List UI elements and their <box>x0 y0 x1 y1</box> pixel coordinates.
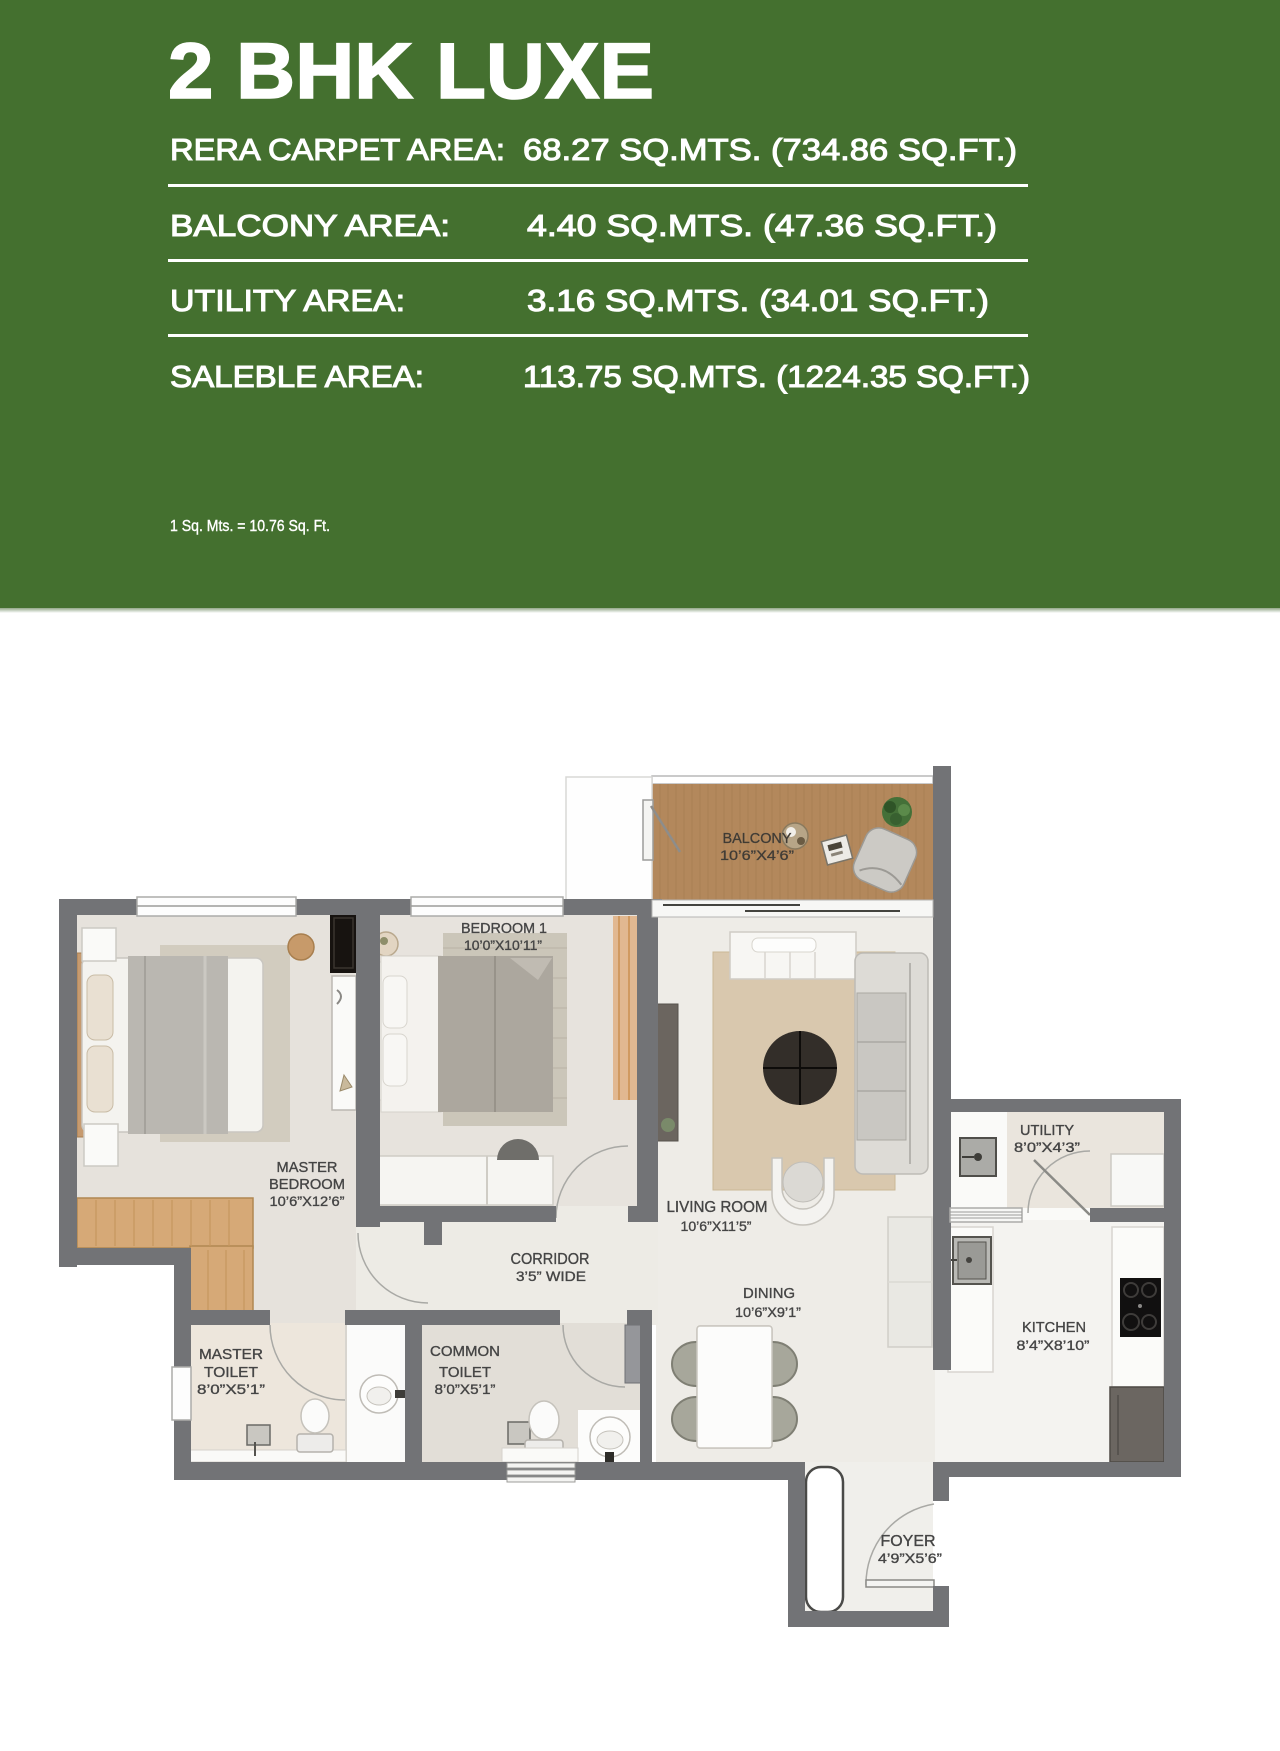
svg-text:UTILITY: UTILITY <box>1020 1122 1074 1139</box>
svg-text:4.40 SQ.MTS. (47.36 SQ.FT.): 4.40 SQ.MTS. (47.36 SQ.FT.) <box>527 208 997 243</box>
svg-text:3’5” WIDE: 3’5” WIDE <box>516 1268 586 1284</box>
svg-text:10’6”X9’1”: 10’6”X9’1” <box>735 1304 801 1320</box>
svg-text:1 Sq. Mts. = 10.76 Sq. Ft.: 1 Sq. Mts. = 10.76 Sq. Ft. <box>170 518 330 535</box>
svg-text:BALCONY: BALCONY <box>723 830 792 847</box>
svg-text:BALCONY AREA:: BALCONY AREA: <box>170 208 450 243</box>
svg-text:MASTER: MASTER <box>199 1346 263 1363</box>
svg-text:10’6”X12’6”: 10’6”X12’6” <box>270 1193 345 1209</box>
svg-text:RERA CARPET AREA:: RERA CARPET AREA: <box>170 132 505 167</box>
svg-text:SALEBLE AREA:: SALEBLE AREA: <box>170 359 424 394</box>
svg-text:TOILET: TOILET <box>439 1364 491 1381</box>
svg-text:2 BHK LUXE: 2 BHK LUXE <box>168 26 654 115</box>
svg-text:8’0”X5’1”: 8’0”X5’1” <box>197 1381 265 1397</box>
svg-text:UTILITY AREA:: UTILITY AREA: <box>170 283 405 318</box>
svg-text:DINING: DINING <box>743 1285 795 1302</box>
svg-text:68.27 SQ.MTS. (734.86 SQ.FT.): 68.27 SQ.MTS. (734.86 SQ.FT.) <box>523 132 1017 167</box>
svg-text:10’6”X4’6”: 10’6”X4’6” <box>720 847 794 863</box>
svg-text:113.75 SQ.MTS. (1224.35 SQ.FT.: 113.75 SQ.MTS. (1224.35 SQ.FT.) <box>523 359 1030 394</box>
svg-text:CORRIDOR: CORRIDOR <box>511 1251 590 1268</box>
svg-text:8’4”X8’10”: 8’4”X8’10” <box>1017 1337 1090 1353</box>
svg-text:10’0”X10’11”: 10’0”X10’11” <box>464 937 542 953</box>
svg-text:3.16 SQ.MTS. (34.01 SQ.FT.): 3.16 SQ.MTS. (34.01 SQ.FT.) <box>527 283 989 318</box>
svg-text:COMMON: COMMON <box>430 1343 500 1360</box>
svg-text:MASTER: MASTER <box>277 1159 338 1176</box>
svg-text:4’9”X5’6”: 4’9”X5’6” <box>878 1550 942 1566</box>
svg-text:8’0”X4’3”: 8’0”X4’3” <box>1014 1139 1080 1155</box>
svg-text:KITCHEN: KITCHEN <box>1022 1319 1086 1336</box>
svg-text:8’0”X5’1”: 8’0”X5’1” <box>435 1381 496 1397</box>
svg-text:FOYER: FOYER <box>881 1533 936 1550</box>
svg-text:LIVING ROOM: LIVING ROOM <box>667 1199 768 1216</box>
svg-text:10’6”X11’5”: 10’6”X11’5” <box>681 1218 752 1234</box>
svg-text:BEDROOM: BEDROOM <box>269 1176 345 1193</box>
svg-text:BEDROOM 1: BEDROOM 1 <box>461 920 547 937</box>
svg-text:TOILET: TOILET <box>204 1364 258 1381</box>
